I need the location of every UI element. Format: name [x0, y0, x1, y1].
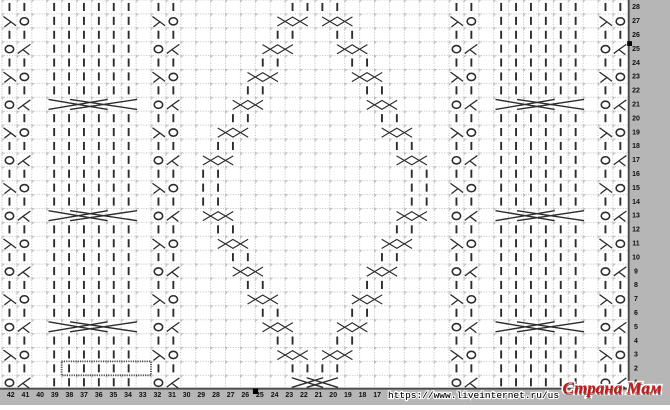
- svg-text:18: 18: [359, 392, 367, 399]
- svg-text:8: 8: [634, 282, 638, 289]
- svg-text:21: 21: [632, 101, 640, 108]
- svg-text:19: 19: [344, 392, 352, 399]
- svg-text:14: 14: [632, 199, 640, 206]
- svg-text:4: 4: [634, 338, 638, 345]
- svg-text:20: 20: [329, 392, 337, 399]
- svg-text:17: 17: [632, 157, 640, 164]
- svg-text:11: 11: [632, 240, 640, 247]
- svg-text:38: 38: [66, 392, 74, 399]
- svg-text:13: 13: [632, 213, 640, 220]
- svg-text:36: 36: [95, 392, 103, 399]
- svg-text:29: 29: [197, 392, 205, 399]
- svg-text:9: 9: [634, 268, 638, 275]
- svg-text:20: 20: [632, 115, 640, 122]
- svg-text:27: 27: [632, 18, 640, 25]
- svg-text:27: 27: [227, 392, 235, 399]
- svg-text:28: 28: [632, 4, 640, 11]
- svg-text:25: 25: [632, 46, 640, 53]
- svg-text:22: 22: [632, 88, 640, 95]
- svg-text:6: 6: [634, 310, 638, 317]
- svg-text:34: 34: [124, 392, 132, 399]
- svg-text:41: 41: [22, 392, 30, 399]
- svg-text:23: 23: [285, 392, 293, 399]
- svg-text:12: 12: [632, 227, 640, 234]
- svg-text:33: 33: [139, 392, 147, 399]
- svg-text:26: 26: [632, 32, 640, 39]
- svg-text:39: 39: [51, 392, 59, 399]
- svg-text:5: 5: [634, 324, 638, 331]
- svg-text:37: 37: [80, 392, 88, 399]
- svg-text:26: 26: [241, 392, 249, 399]
- svg-text:21: 21: [315, 392, 323, 399]
- svg-text:10: 10: [632, 254, 640, 261]
- svg-text:https://www.liveinternet.ru/us: https://www.liveinternet.ru/us: [388, 390, 559, 401]
- svg-text:42: 42: [7, 392, 15, 399]
- svg-text:18: 18: [632, 143, 640, 150]
- svg-text:15: 15: [632, 185, 640, 192]
- svg-text:23: 23: [632, 74, 640, 81]
- svg-text:30: 30: [183, 392, 191, 399]
- svg-text:35: 35: [109, 392, 117, 399]
- svg-text:24: 24: [632, 60, 640, 67]
- svg-text:Страна Мам: Страна Мам: [563, 378, 662, 397]
- svg-text:19: 19: [632, 129, 640, 136]
- svg-text:3: 3: [634, 352, 638, 359]
- svg-text:28: 28: [212, 392, 220, 399]
- svg-text:2: 2: [634, 366, 638, 373]
- svg-text:31: 31: [168, 392, 176, 399]
- svg-text:32: 32: [153, 392, 161, 399]
- svg-text:22: 22: [300, 392, 308, 399]
- svg-text:24: 24: [271, 392, 279, 399]
- svg-text:7: 7: [634, 296, 638, 303]
- svg-text:40: 40: [36, 392, 44, 399]
- svg-text:17: 17: [373, 392, 381, 399]
- svg-text:16: 16: [632, 171, 640, 178]
